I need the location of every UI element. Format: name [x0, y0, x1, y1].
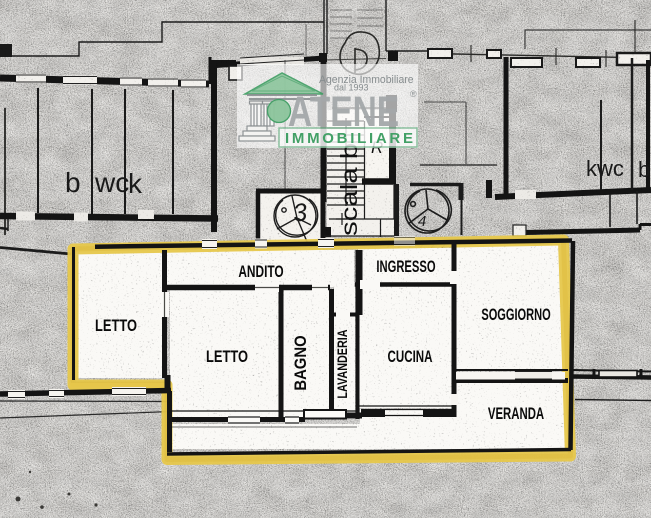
svg-text:LAVANDERIA: LAVANDERIA: [335, 329, 350, 398]
svg-text:SOGGIORNO: SOGGIORNO: [481, 305, 550, 324]
svg-text:BAGNO: BAGNO: [292, 335, 310, 390]
svg-text:®: ®: [410, 89, 417, 99]
svg-text:scala b: scala b: [336, 143, 362, 236]
svg-text:VERANDA: VERANDA: [488, 405, 544, 424]
svg-text:INGRESSO: INGRESSO: [376, 257, 435, 276]
svg-text:ATENE: ATENE: [288, 88, 399, 136]
svg-text:CUCINA: CUCINA: [388, 348, 433, 367]
svg-text:LETTO: LETTO: [206, 349, 248, 367]
svg-text:dal 1993: dal 1993: [334, 83, 369, 93]
svg-text:ANDITO: ANDITO: [238, 263, 283, 281]
svg-text:k: k: [128, 168, 143, 199]
svg-text:kwc: kwc: [586, 156, 624, 181]
svg-text:b: b: [65, 167, 81, 198]
svg-text:4: 4: [418, 213, 426, 230]
svg-text:LETTO: LETTO: [95, 318, 137, 336]
svg-text:wc: wc: [94, 167, 129, 198]
svg-text:b: b: [638, 157, 650, 182]
